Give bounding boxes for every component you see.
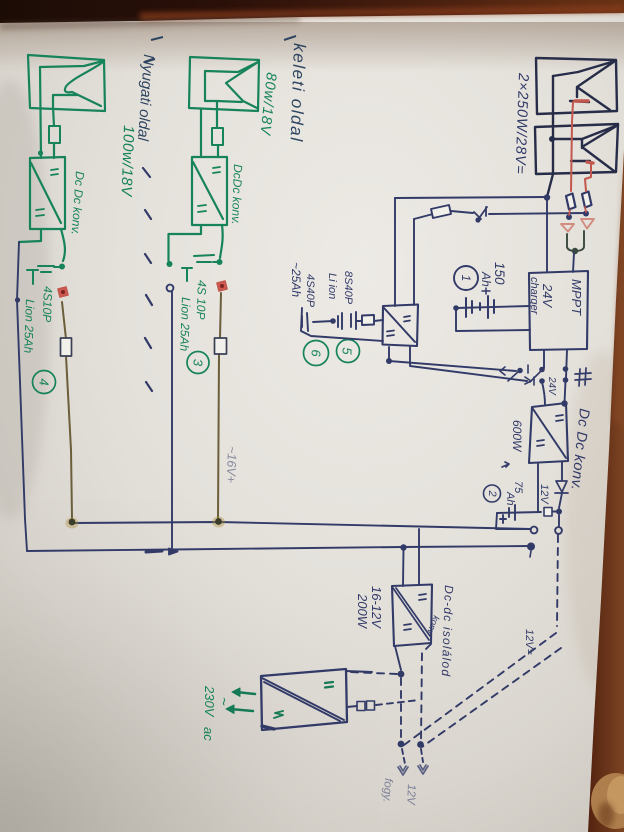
svg-text:4S10P: 4S10P — [40, 286, 55, 322]
svg-text:1: 1 — [459, 275, 473, 282]
svg-text:~: ~ — [215, 697, 232, 706]
svg-text:12V: 12V — [538, 484, 550, 505]
svg-text:MPPT: MPPT — [569, 279, 584, 316]
svg-text:200W: 200W — [355, 593, 370, 630]
svg-text:16-12V: 16-12V — [369, 586, 384, 629]
svg-text:4S 10P: 4S 10P — [194, 280, 209, 320]
svg-text:230V: 230V — [202, 685, 217, 718]
svg-text:5: 5 — [340, 347, 355, 355]
svg-text:4: 4 — [37, 378, 52, 385]
svg-text:3: 3 — [191, 359, 206, 367]
svg-text:ac: ac — [201, 727, 216, 741]
svg-text:Li ion: Li ion — [326, 273, 338, 299]
svg-text:Ah: Ah — [504, 491, 516, 505]
svg-text:Lion 25Ah: Lion 25Ah — [21, 299, 37, 354]
svg-text:fogy.: fogy. — [380, 778, 394, 803]
svg-text:Lion 25Ah: Lion 25Ah — [177, 297, 193, 352]
svg-text:~16V+: ~16V+ — [224, 446, 239, 483]
svg-text:Ah: Ah — [479, 271, 493, 287]
svg-text:12V: 12V — [404, 784, 417, 806]
svg-text:~25Ah: ~25Ah — [289, 262, 303, 297]
svg-text:keleti oldal: keleti oldal — [287, 43, 309, 143]
svg-text:2: 2 — [486, 489, 498, 496]
svg-text:6: 6 — [309, 349, 324, 357]
svg-text:24V: 24V — [546, 376, 557, 396]
svg-text:100w/18V: 100w/18V — [117, 125, 137, 198]
svg-text:600W: 600W — [510, 420, 524, 453]
svg-text:12V=: 12V= — [523, 629, 535, 656]
svg-text:DcDc konv.: DcDc konv. — [229, 164, 245, 225]
svg-text:24V: 24V — [540, 283, 555, 308]
svg-text:150: 150 — [492, 262, 507, 285]
svg-text:8S40P: 8S40P — [342, 271, 354, 305]
svg-text:4S40P: 4S40P — [304, 274, 316, 308]
svg-text:charger: charger — [528, 277, 540, 316]
